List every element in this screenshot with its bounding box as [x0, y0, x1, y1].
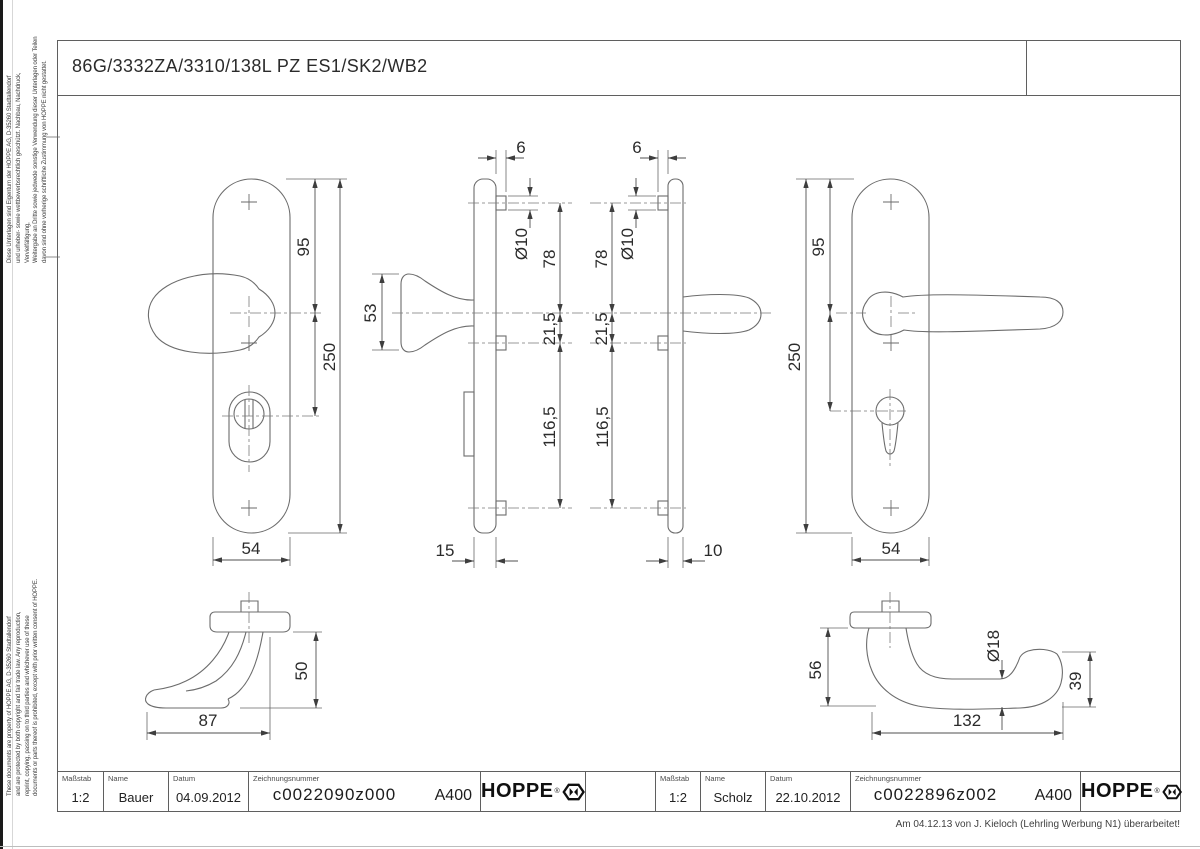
scale-label: Maßstab [62, 774, 91, 783]
format-code: A400 [435, 787, 472, 805]
title-row: 86G/3332ZA/3310/138L PZ ES1/SK2/WB2 [58, 41, 1180, 96]
spacer-cell [586, 772, 656, 811]
name-value: Bauer [104, 790, 168, 805]
name-value: Scholz [701, 790, 765, 805]
hoppe-hexagon-icon [1162, 782, 1182, 802]
drawing-number-cell-right: Zeichnungsnummer c0022896z002 A400 [851, 772, 1081, 811]
scan-edge [0, 0, 3, 849]
title-block-bar: Maßstab 1:2 Name Bauer Datum 04.09.2012 … [58, 771, 1180, 811]
copyright-note-english: These documents are property of HOPPE AG… [6, 568, 41, 796]
name-label: Name [108, 774, 128, 783]
date-cell-right: Datum 22.10.2012 [766, 772, 851, 811]
date-label: Datum [173, 774, 195, 783]
drawing-number-value: c0022090z000 [249, 785, 420, 805]
scan-edge-bottom [0, 846, 1200, 847]
hoppe-logo: HOPPE® [481, 772, 585, 811]
scale-label: Maßstab [660, 774, 689, 783]
date-value: 04.09.2012 [169, 790, 248, 805]
brand-cell-left: HOPPE® [481, 772, 586, 811]
copyright-note-german: Diese Unterlagen sind Eigentum der HOPPE… [6, 33, 50, 263]
drawing-number-label: Zeichnungsnummer [253, 774, 319, 783]
drawing-number-label: Zeichnungsnummer [855, 774, 921, 783]
scale-cell-right: Maßstab 1:2 [656, 772, 701, 811]
drawing-number-value: c0022896z002 [851, 785, 1020, 805]
registered-mark: ® [1155, 788, 1160, 795]
date-value: 22.10.2012 [766, 790, 850, 805]
hoppe-wordmark: HOPPE [481, 780, 554, 803]
scale-value: 1:2 [58, 790, 103, 805]
scale-value: 1:2 [656, 790, 700, 805]
date-label: Datum [770, 774, 792, 783]
hoppe-hexagon-icon [562, 782, 585, 802]
hoppe-logo: HOPPE® [1081, 772, 1182, 811]
drawing-number-cell-left: Zeichnungsnummer c0022090z000 A400 [249, 772, 481, 811]
brand-cell-right: HOPPE® [1081, 772, 1182, 811]
name-cell-left: Name Bauer [104, 772, 169, 811]
registered-mark: ® [555, 788, 560, 795]
name-label: Name [705, 774, 725, 783]
scale-cell-left: Maßstab 1:2 [58, 772, 104, 811]
title-divider [1026, 41, 1027, 95]
hoppe-wordmark: HOPPE [1081, 780, 1154, 803]
drawing-sheet: Diese Unterlagen sind Eigentum der HOPPE… [0, 0, 1200, 849]
page-title: 86G/3332ZA/3310/138L PZ ES1/SK2/WB2 [72, 56, 428, 77]
date-cell-left: Datum 04.09.2012 [169, 772, 249, 811]
drawing-frame: 86G/3332ZA/3310/138L PZ ES1/SK2/WB2 Maßs… [57, 40, 1181, 812]
revision-note: Am 04.12.13 von J. Kieloch (Lehrling Wer… [896, 819, 1180, 830]
name-cell-right: Name Scholz [701, 772, 766, 811]
format-code: A400 [1035, 787, 1072, 805]
